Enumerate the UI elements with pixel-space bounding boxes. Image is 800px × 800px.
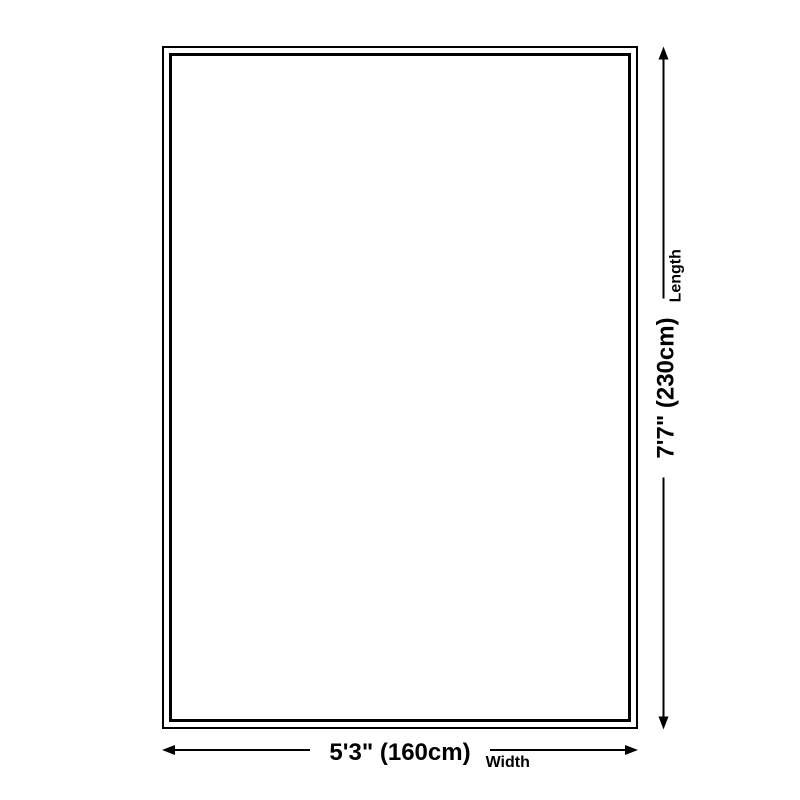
width-line-segment-right: Width [490, 738, 625, 762]
arrow-right-icon [625, 745, 638, 755]
width-label: Width [486, 754, 530, 772]
length-line-segment-bottom [662, 478, 665, 717]
arrow-down-icon [659, 717, 669, 730]
length-dimension: 7'7" (230cm) Length [652, 47, 676, 730]
rug-dimension-diagram: 5'3" (160cm) Width 7'7" (230cm) Length [0, 0, 800, 800]
arrow-left-icon [162, 745, 175, 755]
dimension-line [490, 749, 625, 752]
rug-outline-inner [169, 53, 631, 722]
width-value: 5'3" (160cm) [329, 740, 470, 766]
arrow-up-icon [659, 46, 669, 59]
width-line-segment-left [175, 749, 310, 752]
rug-outline-outer [162, 46, 638, 729]
length-value: 7'7" (230cm) [653, 317, 679, 458]
length-line-segment-top: Length [652, 59, 676, 298]
canvas: { "dimensions": { "width": { "value": "5… [0, 0, 800, 800]
dimension-line [662, 59, 665, 298]
width-dimension: 5'3" (160cm) Width [162, 738, 638, 762]
length-label: Length [668, 249, 686, 302]
